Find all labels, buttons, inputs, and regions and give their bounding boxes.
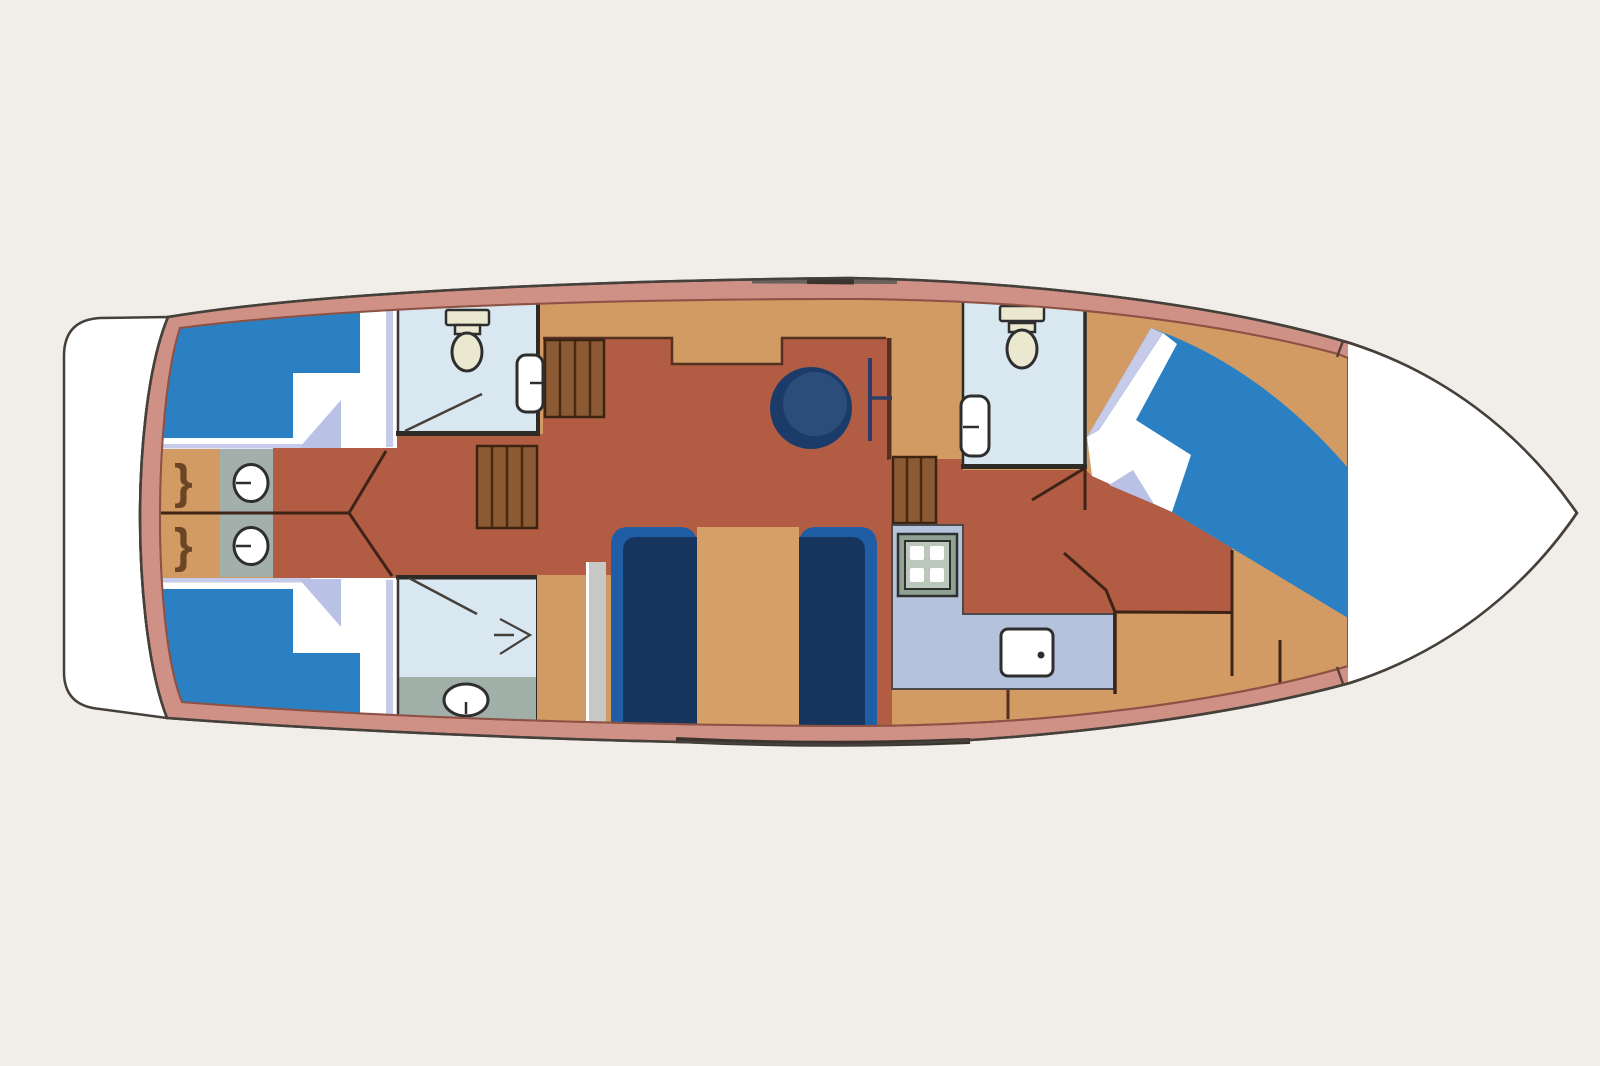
svg-text:}: }	[174, 520, 193, 573]
svg-text:}: }	[174, 456, 193, 509]
